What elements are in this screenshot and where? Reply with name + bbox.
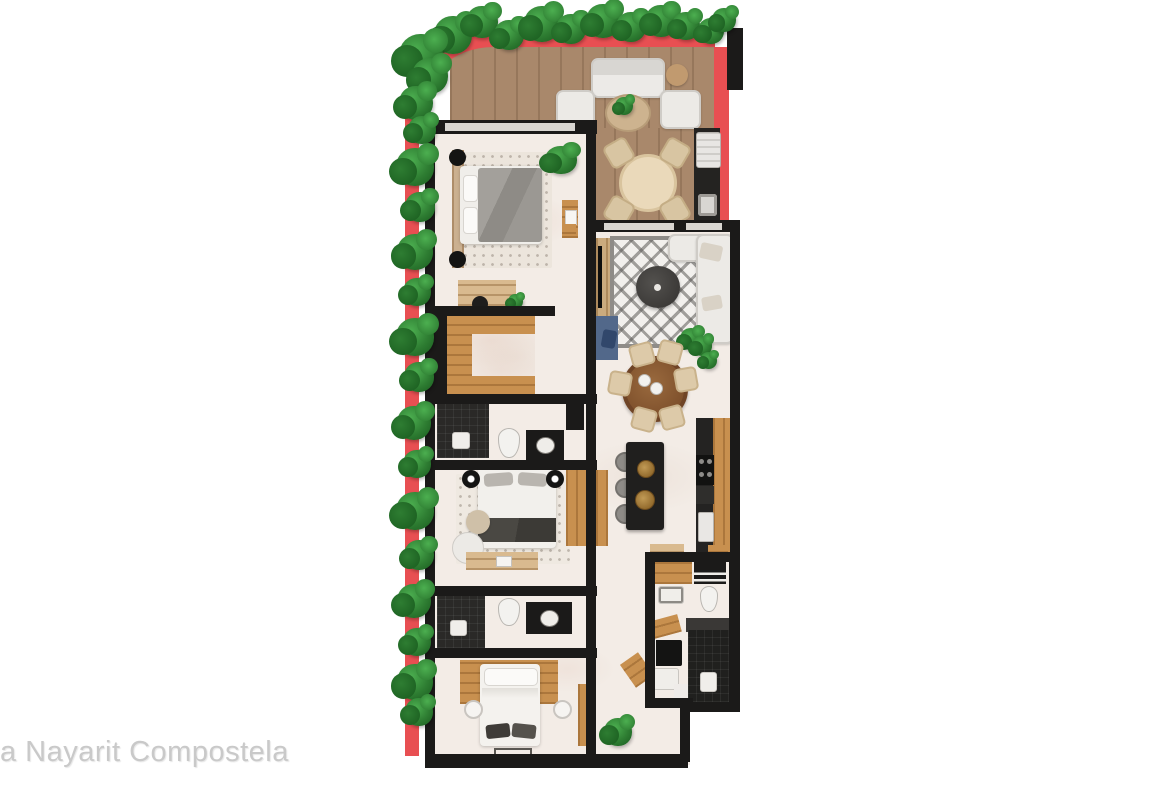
stove-burner xyxy=(699,459,704,464)
bed3-duvet-fold xyxy=(482,688,538,698)
living-sliding-door xyxy=(604,223,674,230)
plant xyxy=(404,362,434,392)
utility-shower-column xyxy=(700,672,717,692)
wall-bed2-top xyxy=(425,460,597,470)
bath1-shower xyxy=(437,398,489,458)
plant xyxy=(397,584,431,618)
bath1-closet xyxy=(566,400,584,430)
dining-chair xyxy=(673,366,700,394)
bed2-pillow xyxy=(518,472,548,487)
plant xyxy=(403,278,431,306)
kitchen-oven xyxy=(698,512,714,542)
terrace-side-table xyxy=(666,64,688,86)
bed2-wall-lamp-left xyxy=(462,470,480,488)
stove-knob-strip xyxy=(696,486,714,504)
plant xyxy=(408,116,436,144)
bed2-pillow xyxy=(484,472,514,487)
coffee-table-plant xyxy=(615,97,633,115)
plant xyxy=(397,406,431,440)
island-gold-bowl xyxy=(635,490,655,510)
wall-bed2-bottom xyxy=(425,586,597,596)
plant xyxy=(397,234,433,270)
bath1-shower-head xyxy=(452,432,470,449)
plant xyxy=(403,450,431,478)
master-window xyxy=(445,123,575,131)
plant xyxy=(403,628,431,656)
wall-utility-top xyxy=(645,552,740,562)
wall-entry-right xyxy=(680,706,690,762)
stove-burner xyxy=(707,459,712,464)
stove-burner xyxy=(699,472,704,477)
terrace-sofa xyxy=(591,58,665,98)
master-speaker-top xyxy=(449,149,466,166)
bed3-lamp-left xyxy=(464,700,483,719)
wall-utility-left xyxy=(645,552,655,704)
wall-bottom xyxy=(425,754,688,768)
bg-patch xyxy=(425,768,737,785)
watermark-text: a Nayarit Compostela xyxy=(0,736,289,769)
plant xyxy=(712,8,736,32)
dining-plate xyxy=(638,374,651,387)
terrace-sink xyxy=(698,194,717,216)
plant xyxy=(405,698,433,726)
living-sliding-door xyxy=(686,223,722,230)
bath2-sink xyxy=(540,610,559,627)
bed2-bench-item xyxy=(496,556,512,567)
bed3-cushion xyxy=(511,723,536,739)
plant xyxy=(396,492,434,530)
wall-utility-right xyxy=(729,552,740,710)
master-speaker-bottom xyxy=(449,251,466,268)
bed3-lamp-right xyxy=(553,700,572,719)
terrace-armchair-right xyxy=(660,90,701,129)
bg-patch xyxy=(729,118,743,224)
wall-center-vertical xyxy=(586,120,596,768)
master-desk-paper xyxy=(565,210,577,225)
plant xyxy=(396,318,434,356)
entry-plant xyxy=(604,718,632,746)
wall-bath1-top xyxy=(425,394,597,404)
plant xyxy=(396,148,434,186)
coffee-table-decor xyxy=(654,284,661,291)
plant xyxy=(405,192,435,222)
tv-screen xyxy=(598,246,602,308)
bbq-grill xyxy=(696,132,721,168)
hall-shelf xyxy=(562,224,576,234)
bg-patch xyxy=(690,712,736,766)
stove-burner xyxy=(707,472,712,477)
wall-shower-bottom xyxy=(686,702,740,712)
bath1-sink xyxy=(536,437,555,454)
wall-corner-topright xyxy=(727,28,743,90)
wall-living-right xyxy=(730,220,740,562)
master-pillow xyxy=(463,207,478,234)
hall-closet-wood xyxy=(596,470,608,546)
dining-plate xyxy=(650,382,663,395)
dining-chair xyxy=(607,370,634,398)
kitchen-island xyxy=(626,442,664,530)
bed2-ottoman xyxy=(466,510,490,534)
plant xyxy=(404,540,434,570)
dining-plant xyxy=(700,352,717,369)
bed2-wall-lamp-right xyxy=(546,470,564,488)
island-gold-bowl xyxy=(637,460,655,478)
master-pillow xyxy=(463,175,478,202)
utility-sink xyxy=(658,586,684,604)
bath2-shower-head xyxy=(450,620,467,636)
closet-floor xyxy=(472,334,535,376)
floorplan-render: a Nayarit Compostela xyxy=(0,0,1170,785)
bed3-cushion xyxy=(485,723,510,739)
wall-bath2-bottom xyxy=(425,648,597,658)
master-plant xyxy=(545,146,577,174)
master-duvet xyxy=(478,168,542,242)
bed3-pillow xyxy=(484,668,538,686)
